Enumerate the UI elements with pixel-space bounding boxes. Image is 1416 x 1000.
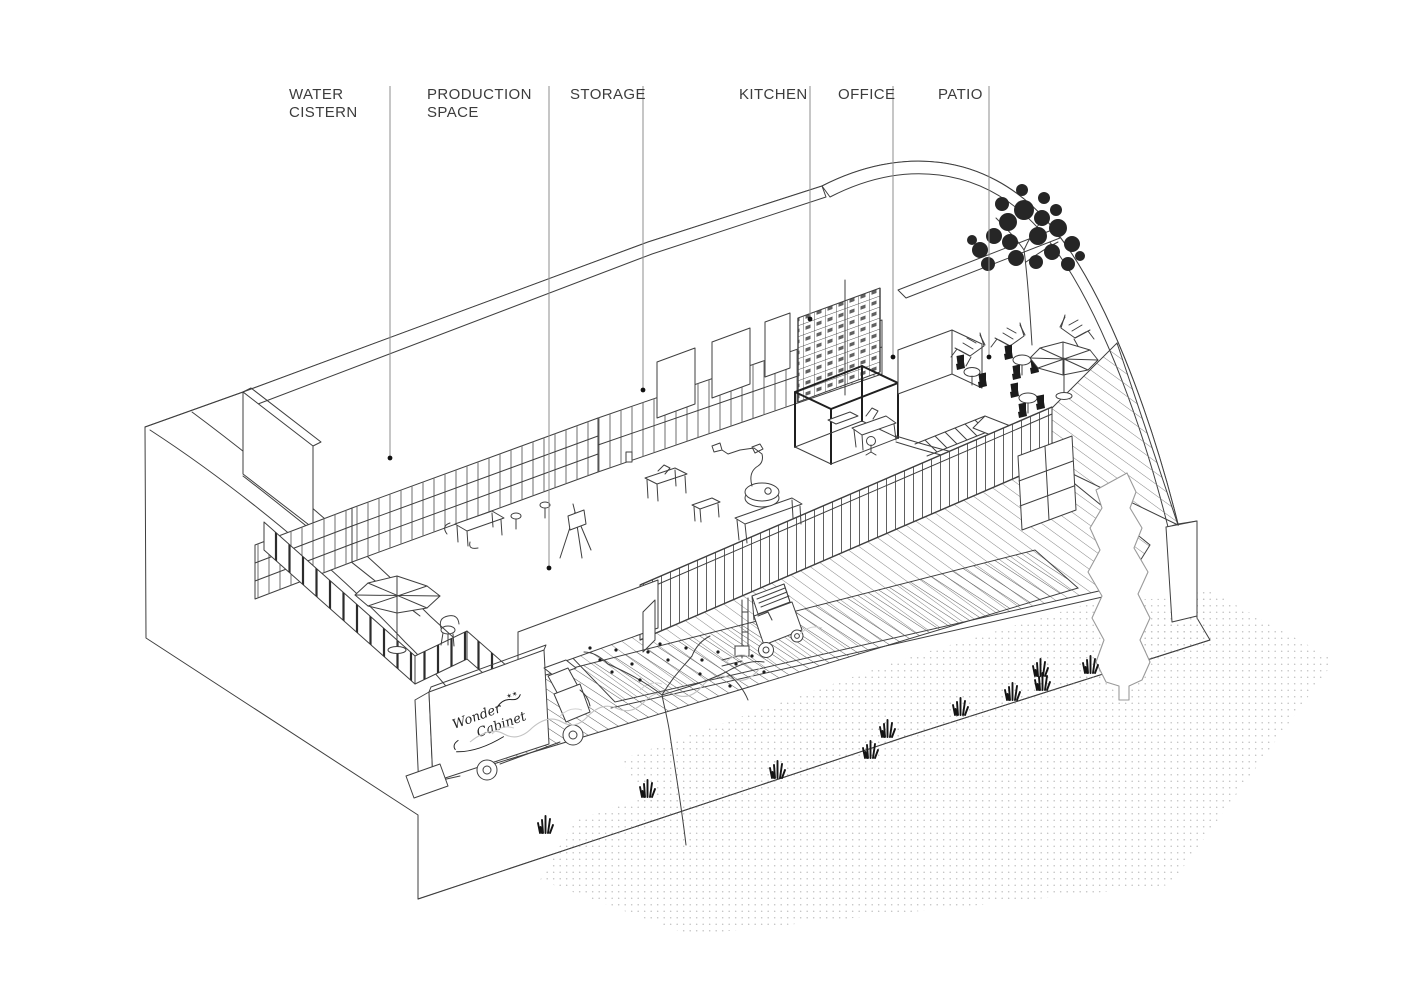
label-water-cistern-line1: WATER — [289, 86, 344, 103]
axonometric-drawing: Wonder ✶✶ Cabinet — [0, 0, 1416, 1000]
shelf-object — [626, 452, 632, 462]
label-patio-line1: PATIO — [938, 86, 983, 103]
label-water-cistern: WATER CISTERN — [289, 86, 358, 121]
label-storage: STORAGE — [570, 86, 646, 103]
label-storage-line1: STORAGE — [570, 86, 646, 103]
label-office: OFFICE — [838, 86, 895, 103]
label-production-space-line1: PRODUCTION — [427, 86, 532, 103]
label-kitchen-line1: KITCHEN — [739, 86, 808, 103]
label-production-space-line2: SPACE — [427, 104, 479, 121]
label-production-space: PRODUCTION SPACE — [427, 86, 532, 121]
zone-labels: WATER CISTERN PRODUCTION SPACE STORAGE K… — [289, 86, 983, 121]
label-kitchen: KITCHEN — [739, 86, 808, 103]
label-office-line1: OFFICE — [838, 86, 895, 103]
label-patio: PATIO — [938, 86, 983, 103]
architectural-diagram: Wonder ✶✶ Cabinet — [0, 0, 1416, 1000]
label-water-cistern-line2: CISTERN — [289, 104, 358, 121]
right-end-wall — [1166, 521, 1197, 622]
